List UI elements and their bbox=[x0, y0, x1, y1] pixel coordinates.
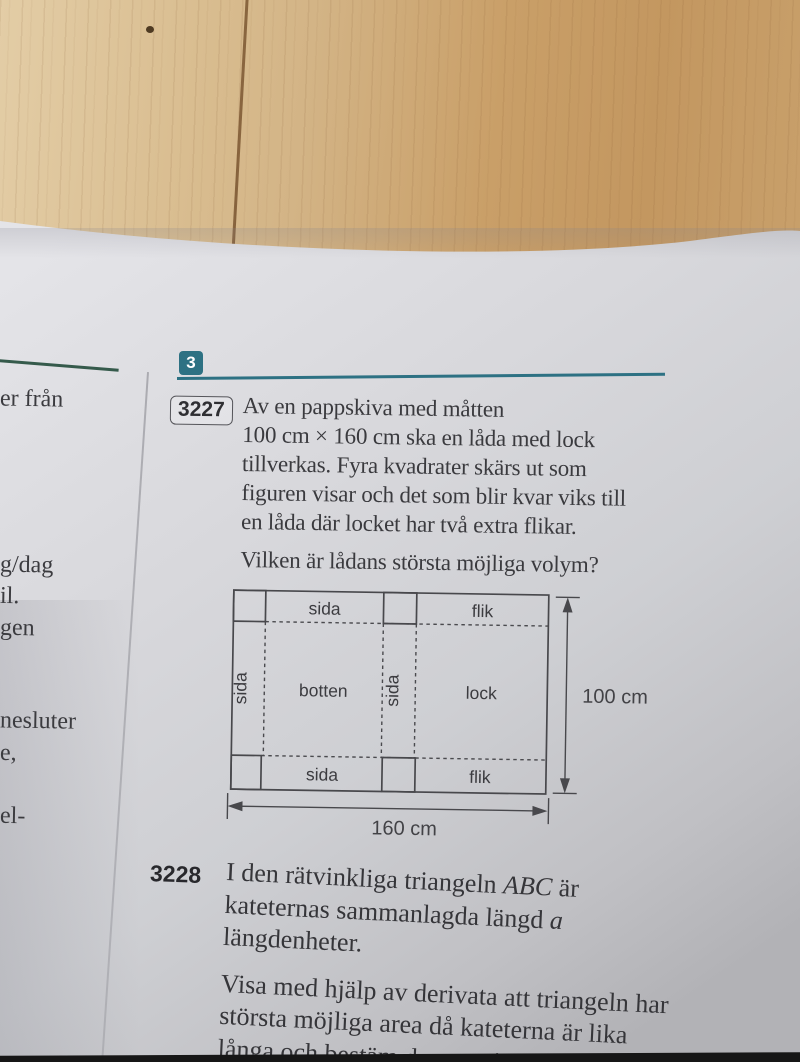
label-side-bottom: sida bbox=[306, 764, 339, 785]
left-fragment: g/dag bbox=[0, 552, 54, 580]
photo-scene: er från g/dag il. gen nesluter e, el- 3 … bbox=[0, 0, 800, 1062]
left-fragment: er från bbox=[0, 385, 64, 413]
cut-square-top-middle bbox=[383, 592, 416, 624]
arrowhead-left bbox=[227, 801, 242, 811]
problem-number-3228: 3228 bbox=[150, 860, 202, 889]
problem-3228-text: I den rätvinkliga triangeln ABC är katet… bbox=[217, 856, 800, 1062]
fold-line-mid-right bbox=[414, 624, 416, 758]
chapter-badge: 3 bbox=[179, 351, 203, 375]
page-left-shading bbox=[0, 600, 140, 1062]
problem-number-3227: 3227 bbox=[170, 396, 233, 426]
cut-square-top-left bbox=[233, 590, 265, 621]
label-flap-bottom: flik bbox=[469, 767, 491, 787]
left-fragment: gen bbox=[0, 615, 35, 643]
label-bottom: botten bbox=[299, 680, 348, 701]
left-fragment: el- bbox=[0, 803, 26, 830]
page-edge-shadow bbox=[0, 228, 800, 258]
text-line: en låda där locket har två extra flikar. bbox=[241, 507, 696, 543]
label-flap-top: flik bbox=[472, 601, 494, 621]
math-var-abc: ABC bbox=[502, 870, 552, 901]
box-net-figure: sida flik sida botten sida lock sida fli… bbox=[222, 582, 658, 855]
left-fragment: nesluter bbox=[0, 707, 76, 735]
dim-height-label: 100 cm bbox=[582, 686, 648, 709]
text-run: är bbox=[552, 873, 580, 903]
left-fragment: il. bbox=[0, 583, 20, 610]
dim-line-vertical bbox=[565, 601, 568, 789]
left-fragment: e, bbox=[0, 740, 17, 767]
dim-width-label: 160 cm bbox=[371, 817, 437, 840]
label-lid: lock bbox=[466, 683, 498, 703]
cut-square-bottom-middle bbox=[382, 757, 416, 792]
label-side-left: sida bbox=[230, 672, 251, 705]
problem-3227-text: Av en pappskiva med måtten 100 cm × 160 … bbox=[240, 391, 698, 581]
dim-line-horizontal bbox=[231, 806, 543, 811]
fold-line-left bbox=[263, 622, 265, 756]
arrowhead-right bbox=[532, 806, 547, 816]
arrowhead-down bbox=[560, 778, 570, 793]
problem-3228-paragraph-2: Visa med hjälp av derivata att triangeln… bbox=[217, 967, 796, 1062]
cut-square-bottom-left bbox=[231, 755, 262, 789]
label-side-middle: sida bbox=[382, 674, 403, 707]
label-side-top: sida bbox=[308, 598, 341, 619]
math-var-a: a bbox=[549, 905, 563, 935]
arrowhead-up bbox=[563, 597, 573, 612]
